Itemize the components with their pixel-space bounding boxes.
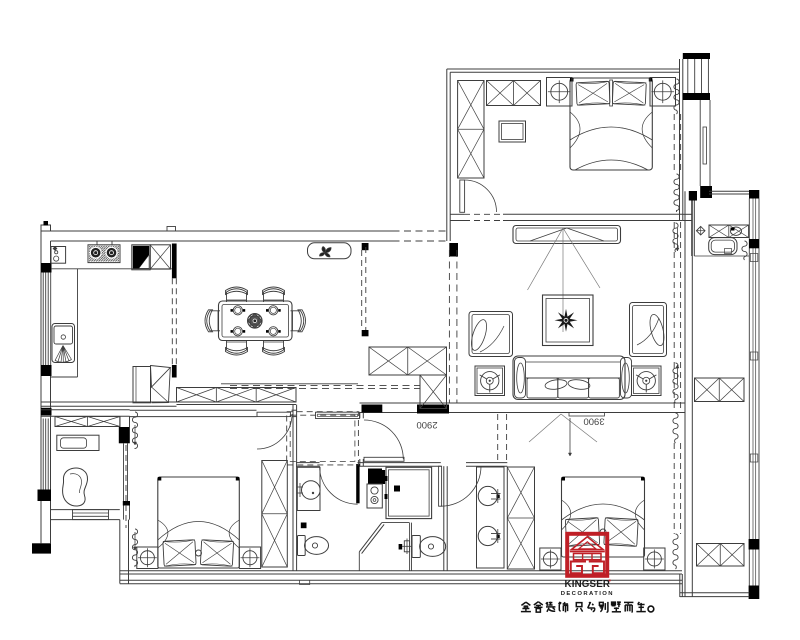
svg-text:KINGSER: KINGSER bbox=[565, 579, 611, 590]
svg-text:DECORATION: DECORATION bbox=[561, 591, 614, 597]
svg-text:2900: 2900 bbox=[416, 419, 437, 430]
svg-text:3900: 3900 bbox=[583, 415, 604, 426]
